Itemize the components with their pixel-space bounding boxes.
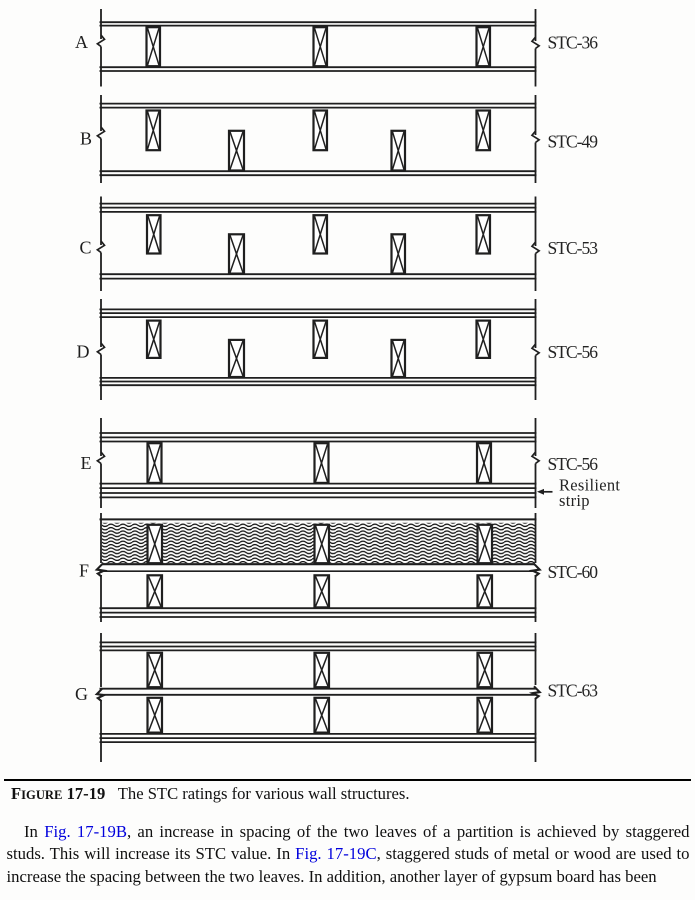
svg-text:G: G [75,684,88,704]
svg-text:strip: strip [559,491,590,510]
svg-text:STC-36: STC-36 [548,32,599,52]
svg-text:STC-56: STC-56 [548,454,599,474]
svg-text:STC-49: STC-49 [548,131,599,151]
svg-text:STC-63: STC-63 [548,681,599,701]
svg-text:STC-56: STC-56 [548,342,599,362]
svg-text:STC-60: STC-60 [548,562,599,582]
svg-text:D: D [77,342,90,362]
svg-text:A: A [75,32,88,52]
svg-text:C: C [80,237,92,257]
svg-text:B: B [80,129,92,149]
svg-text:STC-53: STC-53 [548,238,599,258]
svg-text:E: E [81,453,92,473]
svg-text:F: F [79,561,89,581]
